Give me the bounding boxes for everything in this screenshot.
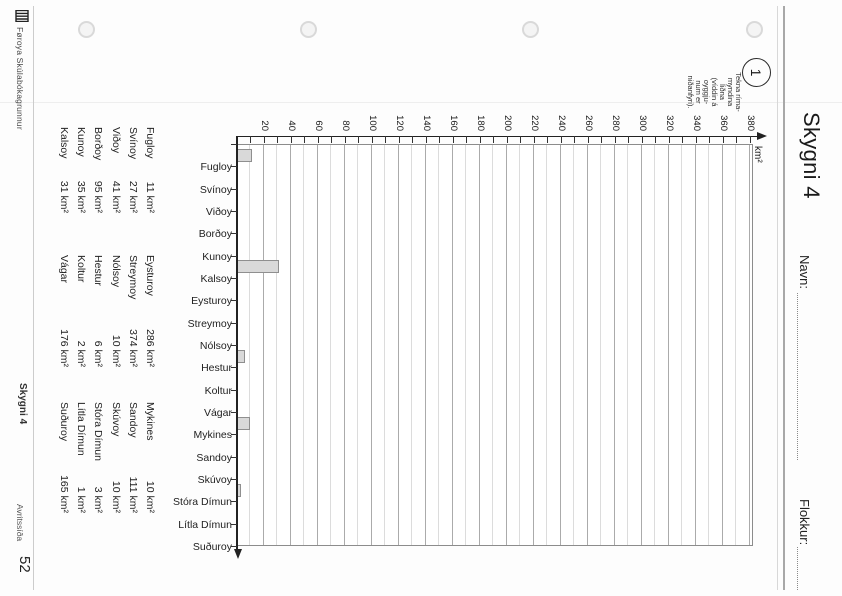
punch-hole [78,21,95,38]
table-island-area: 31 km² [58,149,70,213]
gridline [358,145,359,545]
category-label: Streymoy [164,318,232,330]
gridline [614,145,615,545]
y-axis-tick [628,136,629,143]
y-axis-tick [453,136,454,143]
publisher-name: Føroya Skúlabókagrunnur [15,27,25,130]
gridline [722,145,723,545]
gridline [479,145,480,545]
name-label: Navn: [797,255,812,289]
table-island-name: Lítla Dímun [75,402,87,456]
y-axis-tick-label: 80 [340,97,351,131]
table-island-area: 10 km² [144,449,156,513]
y-axis-tick [385,136,386,143]
header-rule-thin [777,6,778,590]
y-axis-tick-label: 20 [259,97,270,131]
table-island-area: 6 km² [92,303,104,367]
y-axis-tick [264,136,265,143]
table-island-area: 1 km² [75,449,87,513]
y-axis-tick-label: 240 [556,97,567,131]
worksheet-page: Skygni 4 Navn: Flokkur: 1 Tekna ríma-myn… [0,0,842,596]
category-label: Viðoy [164,206,232,218]
gridline [493,145,494,545]
task-number-badge: 1 [742,58,771,87]
category-label: Sandoy [164,452,232,464]
y-axis-unit-label: km² [752,146,763,163]
instruction-line: Tekna ríma- [734,40,742,144]
category-label: Koltur [164,385,232,397]
gridline [749,145,750,545]
category-label: Hestur [164,362,232,374]
y-axis-tick-label: 100 [367,97,378,131]
y-axis-tick [561,136,562,143]
gridline [371,145,372,545]
y-axis-tick-label: 160 [448,97,459,131]
instruction-line: (víddin á [710,40,718,144]
table-island-name: Nólsoy [110,255,122,287]
name-write-line [797,293,799,460]
y-axis-tick [304,136,305,143]
gridline [250,145,251,545]
category-label: Borðoy [164,228,232,240]
y-axis-tick [601,136,602,143]
bar [237,417,251,430]
table-island-area: 374 km² [127,303,139,367]
y-axis-tick-label: 380 [745,97,756,131]
y-axis-tick [426,136,427,143]
table-island-name: Koltur [75,255,87,282]
table-island-name: Suðuroy [58,402,70,441]
table-island-area: 176 km² [58,303,70,367]
y-axis-tick [547,136,548,143]
gridline [655,145,656,545]
table-island-area: 27 km² [127,149,139,213]
gridline [317,145,318,545]
gridline [290,145,291,545]
gridline [439,145,440,545]
y-axis-line [237,136,758,138]
y-axis-tick [709,136,710,143]
y-axis-tick-label: 280 [610,97,621,131]
table-island-area: 286 km² [144,303,156,367]
y-axis-tick [588,136,589,143]
gridline [668,145,669,545]
table-island-name: Eysturoy [144,255,156,296]
gridline [452,145,453,545]
gridline [682,145,683,545]
y-axis-tick-label: 120 [394,97,405,131]
y-axis-tick-label: 200 [502,97,513,131]
table-island-area: 41 km² [110,149,122,213]
y-axis-tick [466,136,467,143]
gridline [601,145,602,545]
table-island-name: Skúvoy [110,402,122,436]
header-rule [783,6,785,590]
gridline [547,145,548,545]
category-label: Kunoy [164,251,232,263]
task-number: 1 [749,69,765,77]
table-island-area: 111 km² [127,449,139,513]
footer-rule [33,6,34,590]
category-label: Vágar [164,407,232,419]
gridline [344,145,345,545]
publisher-logo-icon [15,10,29,22]
y-axis-tick [399,136,400,143]
y-axis-tick [669,136,670,143]
gridline [466,145,467,545]
bar [237,350,245,363]
y-axis-tick-label: 360 [718,97,729,131]
table-island-area: 3 km² [92,449,104,513]
gridline [736,145,737,545]
gridline [628,145,629,545]
plot-area [237,144,753,546]
table-island-area: 35 km² [75,149,87,213]
gridline [520,145,521,545]
y-axis-tick [412,136,413,143]
gridline [709,145,710,545]
bar [237,260,279,273]
page-number: 52 [16,556,33,573]
y-axis-tick [250,136,251,143]
table-island-area: 95 km² [92,149,104,213]
table-island-name: Sandoy [127,402,139,438]
punch-hole [746,21,763,38]
category-label: Suðuroy [164,541,232,553]
y-axis-tick-label: 180 [475,97,486,131]
y-axis-tick [277,136,278,143]
gridline [385,145,386,545]
y-axis-tick [439,136,440,143]
table-island-area: 11 km² [144,149,156,213]
y-axis-tick [372,136,373,143]
gridline [533,145,534,545]
table-island-area: 10 km² [110,449,122,513]
y-axis-tick [345,136,346,143]
y-axis-tick [736,136,737,143]
table-island-area: 10 km² [110,303,122,367]
gridline [277,145,278,545]
y-axis-tick [318,136,319,143]
y-axis-tick-label: 140 [421,97,432,131]
instruction-line: oyggju- [702,40,710,144]
gridline [412,145,413,545]
category-label: Mykines [164,429,232,441]
table-island-name: Hestur [92,255,104,286]
x-axis-tick [231,144,237,145]
y-axis-tick-label: 260 [583,97,594,131]
category-label: Eysturoy [164,295,232,307]
table-island-area: 2 km² [75,303,87,367]
class-label: Flokkur: [797,499,812,545]
y-axis-tick [574,136,575,143]
y-axis-tick-label: 300 [637,97,648,131]
gridline [263,145,264,545]
category-label: Svínoy [164,184,232,196]
gridline [398,145,399,545]
y-axis-tick [682,136,683,143]
y-axis-tick-label: 220 [529,97,540,131]
y-axis-tick [507,136,508,143]
y-axis-tick [655,136,656,143]
class-write-line [797,547,799,590]
category-label: Skúvoy [164,474,232,486]
page-title: Skygni 4 [798,112,824,199]
y-axis-tick [642,136,643,143]
punch-hole [522,21,539,38]
gridline [641,145,642,545]
gridline [331,145,332,545]
table-island-name: Vágar [58,255,70,283]
y-axis-tick [615,136,616,143]
page-type-label: Avritssíða [15,504,25,541]
table-island-area: 165 km² [58,449,70,513]
y-axis-tick-label: 40 [286,97,297,131]
category-label: Fugloy [164,161,232,173]
y-axis-tick [696,136,697,143]
gridline [304,145,305,545]
category-label: Lítla Dímun [164,519,232,531]
category-label: Nólsoy [164,340,232,352]
gridline [425,145,426,545]
x-axis-line [237,136,239,550]
gridline [560,145,561,545]
gridline [587,145,588,545]
y-axis-tick-label: 60 [313,97,324,131]
bar [237,149,252,162]
table-island-name: Streymoy [127,255,139,299]
x-axis-arrow-icon [234,549,242,559]
y-axis-tick [520,136,521,143]
y-axis-tick [331,136,332,143]
y-axis-tick [534,136,535,143]
gridline [695,145,696,545]
y-axis-tick [480,136,481,143]
y-axis-tick [358,136,359,143]
gridline [506,145,507,545]
punch-hole [300,21,317,38]
y-axis-tick [750,136,751,143]
table-island-name: Mykines [144,402,156,441]
category-label: Kalsoy [164,273,232,285]
gridline [574,145,575,545]
y-axis-tick-label: 340 [691,97,702,131]
footer-sheet-title: Skygni 4 [17,383,28,424]
y-axis-tick-label: 320 [664,97,675,131]
y-axis-tick [493,136,494,143]
y-axis-tick [723,136,724,143]
y-axis-arrow-icon [757,132,767,140]
y-axis-tick [291,136,292,143]
category-label: Stóra Dímun [164,496,232,508]
